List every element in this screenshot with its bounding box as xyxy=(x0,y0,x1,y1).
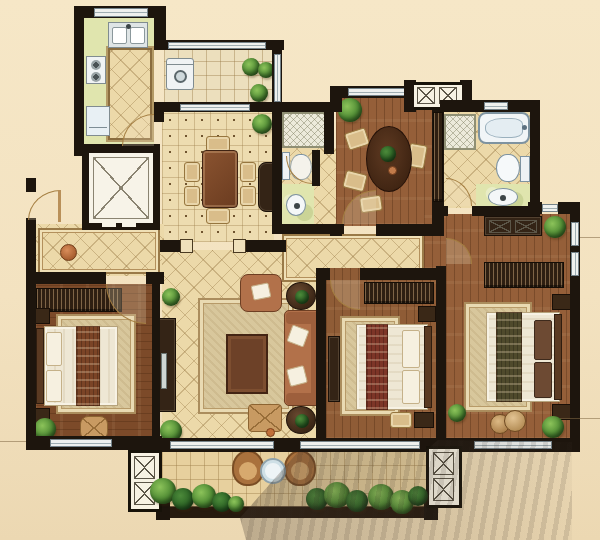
balcony-door-window xyxy=(170,441,274,449)
pillow xyxy=(402,330,420,368)
wall xyxy=(272,102,282,234)
side-table xyxy=(286,406,316,434)
bed-runner xyxy=(76,326,100,406)
floor-plan xyxy=(0,0,600,540)
table-plant xyxy=(295,414,309,428)
kitchen-sink xyxy=(108,22,148,48)
washer-panel-line xyxy=(167,64,193,65)
tall-cabinet xyxy=(433,112,443,202)
window xyxy=(484,102,508,110)
wall xyxy=(436,266,446,444)
dining-chair xyxy=(240,162,256,182)
armchair xyxy=(240,274,282,312)
wall xyxy=(146,272,164,284)
dimension-line xyxy=(560,418,600,419)
wall xyxy=(324,108,334,154)
wall xyxy=(316,268,330,280)
pillow xyxy=(534,362,552,398)
decor-stool xyxy=(266,428,275,437)
toilet xyxy=(496,154,520,182)
window xyxy=(571,252,579,276)
wall xyxy=(152,284,160,438)
potted-plant xyxy=(448,404,466,422)
nightstand xyxy=(34,308,50,324)
table-plant xyxy=(295,290,309,304)
wash-basin xyxy=(286,194,306,216)
entry-mat xyxy=(38,228,160,274)
dresser-panel xyxy=(489,220,511,233)
foyer-stool xyxy=(60,244,77,261)
potted-plant xyxy=(250,84,268,102)
chair-cushion xyxy=(239,462,257,480)
wardrobe xyxy=(364,282,434,304)
wall xyxy=(26,218,36,450)
refrigerator xyxy=(86,106,110,136)
washing-machine xyxy=(166,58,194,90)
dresser xyxy=(484,216,542,236)
wall xyxy=(360,268,442,280)
wall xyxy=(330,86,342,112)
pillow xyxy=(286,324,309,347)
window xyxy=(542,204,558,212)
window xyxy=(348,88,408,96)
coffee-table xyxy=(226,334,268,394)
wall xyxy=(530,100,540,212)
bed-runner xyxy=(496,312,522,402)
stove xyxy=(86,56,106,84)
pillow xyxy=(286,365,308,387)
sink-basin-right xyxy=(130,27,145,44)
burner-icon xyxy=(91,60,101,70)
table-plant xyxy=(380,146,396,162)
wall xyxy=(316,280,326,448)
wall xyxy=(154,108,164,122)
wall xyxy=(330,224,342,236)
shrub xyxy=(228,496,244,512)
entry-door-arc xyxy=(28,190,61,220)
dining-chair xyxy=(184,186,200,206)
elevator-door xyxy=(122,223,136,227)
bed-runner xyxy=(366,324,388,410)
pillow xyxy=(534,320,552,360)
washer-door-icon xyxy=(174,70,187,83)
window xyxy=(180,104,250,111)
nightstand xyxy=(418,306,436,322)
tv-cabinet xyxy=(328,336,340,402)
balcony-door-window xyxy=(300,441,420,449)
pillow xyxy=(251,282,272,300)
window xyxy=(274,54,281,102)
dresser-panel xyxy=(515,220,537,233)
pillow xyxy=(402,370,420,404)
sink-basin-left xyxy=(112,27,127,44)
sofa-armrest xyxy=(286,393,320,405)
wall xyxy=(440,206,448,216)
headboard xyxy=(36,328,44,404)
tv-icon xyxy=(161,353,167,389)
drain-icon xyxy=(294,203,300,209)
burner-icon xyxy=(91,72,101,82)
shower xyxy=(444,114,476,150)
dining-table xyxy=(202,150,238,208)
wardrobe xyxy=(484,262,564,288)
potted-plant xyxy=(544,216,566,238)
elevator-cab xyxy=(93,157,149,219)
potted-plant xyxy=(252,114,272,134)
drain-icon xyxy=(522,125,527,130)
wall xyxy=(160,240,180,252)
window xyxy=(571,222,579,246)
nightstand xyxy=(414,412,434,428)
fridge-divider xyxy=(89,127,107,128)
bench xyxy=(390,412,412,428)
window xyxy=(94,8,148,17)
headboard xyxy=(424,326,432,408)
dining-chair xyxy=(184,162,200,182)
entry-door-leaf xyxy=(58,190,61,222)
pillow xyxy=(46,332,62,366)
nightstand xyxy=(552,294,572,310)
wall xyxy=(74,6,84,156)
bathtub-basin xyxy=(485,118,523,138)
ac-grille xyxy=(134,456,155,479)
potted-plant xyxy=(162,288,180,306)
pillow xyxy=(46,370,62,402)
headboard xyxy=(554,314,562,400)
dimension-line xyxy=(580,237,600,238)
elevator xyxy=(82,146,160,230)
bathtub xyxy=(478,112,530,144)
teapot-icon xyxy=(388,166,397,175)
faucet-icon xyxy=(126,24,131,29)
window xyxy=(50,439,112,447)
dining-chair xyxy=(206,208,230,224)
faucet-icon xyxy=(500,195,506,201)
wall xyxy=(312,150,320,186)
ac-grille xyxy=(417,87,435,104)
shower xyxy=(282,112,326,148)
sofa-armrest xyxy=(286,312,320,324)
wall xyxy=(528,202,542,214)
dining-chair xyxy=(240,186,256,206)
pillar xyxy=(233,239,246,253)
vanity-stool xyxy=(504,410,526,432)
toilet-tank xyxy=(520,156,530,182)
wall xyxy=(246,240,286,252)
elevator-door xyxy=(102,223,116,227)
side-table xyxy=(286,282,316,310)
wall xyxy=(26,178,36,192)
ottoman xyxy=(248,404,282,432)
shrub xyxy=(172,488,194,510)
wall xyxy=(26,272,106,284)
dimension-line xyxy=(0,441,26,442)
window xyxy=(168,42,266,49)
wash-basin xyxy=(488,188,518,206)
pillar xyxy=(180,239,193,253)
potted-plant xyxy=(542,416,564,438)
